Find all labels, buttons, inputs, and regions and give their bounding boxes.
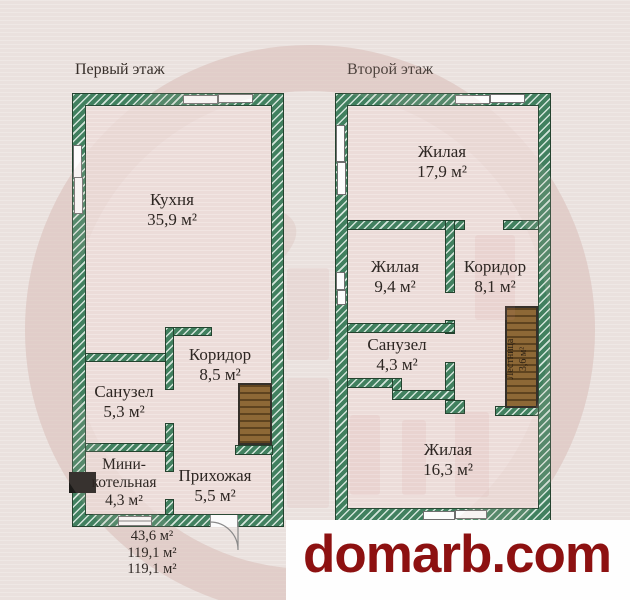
room-label-hallway: Прихожая 5,5 м² — [155, 466, 275, 506]
room-name: Санузел — [345, 335, 449, 355]
total-line: 43,6 м² — [90, 528, 214, 545]
area-totals: 43,6 м² 119,1 м² 119,1 м² — [90, 528, 214, 578]
stairs-label: Лестница 3,6 м² — [504, 309, 538, 409]
room-label-bathroom-1: Санузел 5,3 м² — [64, 382, 184, 422]
floor2-title: Второй этаж — [347, 61, 433, 79]
room-label-bathroom-2: Санузел 4,3 м² — [345, 335, 449, 375]
total-line: 119,1 м² — [90, 561, 214, 578]
room-label-corridor-2: Коридор 8,1 м² — [435, 257, 555, 297]
total-line: 119,1 м² — [90, 545, 214, 562]
window-marker — [74, 177, 83, 214]
room-name: Прихожая — [155, 466, 275, 486]
room-area: 16,3 м² — [386, 460, 510, 480]
room-area: 5,3 м² — [64, 402, 184, 422]
room-name: Жилая — [343, 257, 447, 277]
room-label-living-top: Жилая 17,9 м² — [380, 142, 504, 182]
window-marker — [336, 125, 345, 162]
stairs-first-floor — [238, 383, 272, 445]
floor-plan-image: Первый этаж Второй этаж — [0, 0, 630, 600]
room-area: 4,3 м² — [345, 355, 449, 375]
room-label-living-bottom: Жилая 16,3 м² — [386, 440, 510, 480]
room-label-living-mid: Жилая 9,4 м² — [343, 257, 447, 297]
window-marker — [455, 510, 487, 519]
room-name: Кухня — [102, 190, 242, 210]
window-marker — [218, 94, 253, 103]
window-marker — [183, 95, 218, 104]
stairs-area: 3,6 м² — [517, 309, 530, 409]
room-label-kitchen: Кухня 35,9 м² — [102, 190, 242, 230]
room-name: Санузел — [64, 382, 184, 402]
window-marker — [490, 94, 525, 103]
room-label-corridor-1: Коридор 8,5 м² — [160, 345, 280, 385]
window-marker — [423, 511, 455, 520]
window-marker — [118, 516, 152, 526]
room-area: 9,4 м² — [343, 277, 447, 297]
room-area: 35,9 м² — [102, 210, 242, 230]
room-area: 17,9 м² — [380, 162, 504, 182]
window-marker — [455, 95, 490, 104]
site-watermark: domarb.com — [288, 524, 626, 585]
wall-segment — [503, 220, 539, 230]
floor1-title: Первый этаж — [75, 61, 165, 79]
wall-segment — [85, 443, 174, 452]
window-marker — [337, 162, 346, 195]
room-name: Коридор — [435, 257, 555, 277]
wall-segment — [235, 445, 273, 455]
room-name: Жилая — [386, 440, 510, 460]
window-marker — [73, 145, 82, 178]
room-name: Коридор — [160, 345, 280, 365]
wall-segment — [347, 323, 455, 333]
wall-segment — [392, 390, 455, 400]
room-area: 8,1 м² — [435, 277, 555, 297]
stairs-name: Лестница — [504, 309, 517, 409]
room-area: 5,5 м² — [155, 486, 275, 506]
wall-segment — [445, 400, 465, 414]
room-name: Жилая — [380, 142, 504, 162]
